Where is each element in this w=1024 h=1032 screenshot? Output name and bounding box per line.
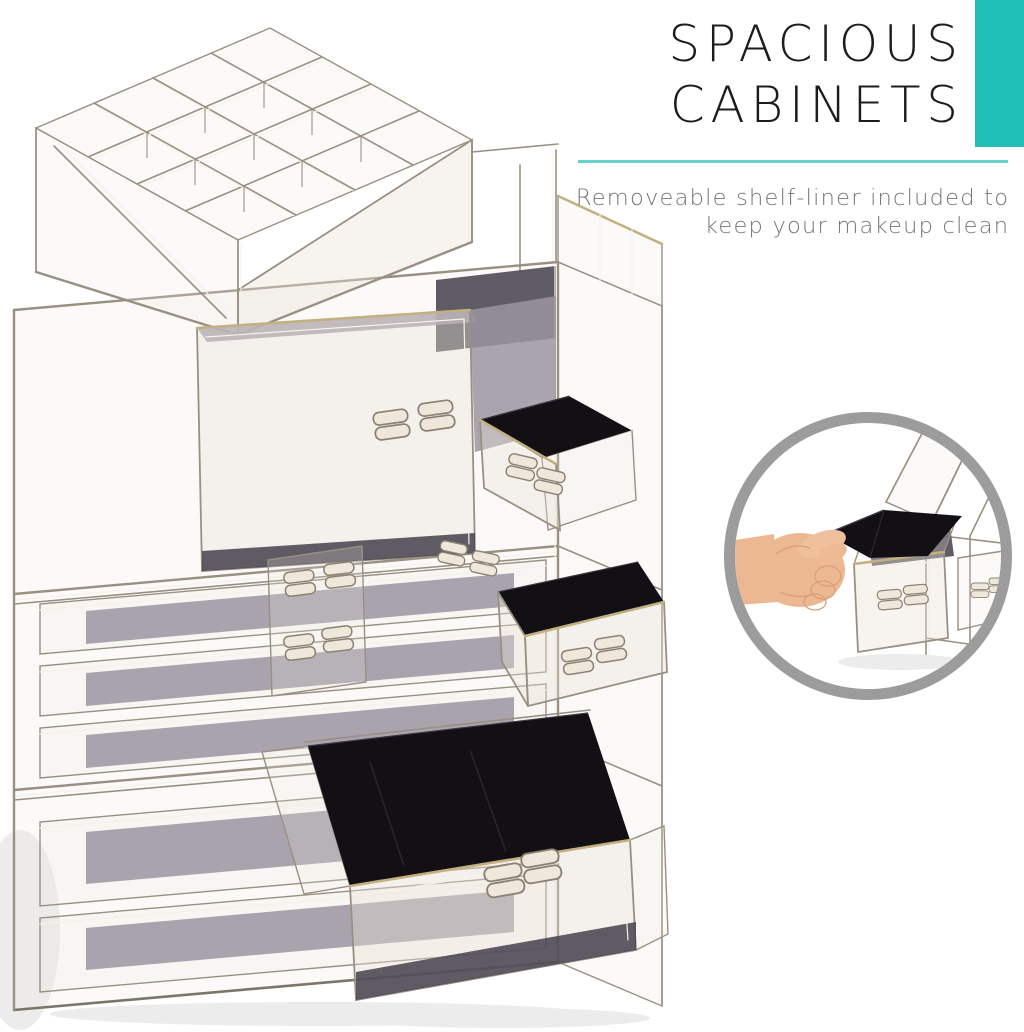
subtitle: Removeable shelf-liner included to keep … [576,184,1008,240]
inset-illustration [718,406,1018,706]
title-line-1: SPACIOUS [668,14,963,75]
divider-line [578,160,1008,163]
title-line-2: CABINETS [668,75,963,136]
page-title: SPACIOUS CABINETS [668,14,958,136]
subtitle-line-2: keep your makeup clean [576,212,1009,240]
headline-block: SPACIOUS CABINETS Removeable shelf-liner… [0,0,1024,260]
accent-bar [975,0,1024,147]
shelf-liner-demo-inset [718,406,1018,706]
drawer-front [197,310,475,571]
subtitle-line-1: Removeable shelf-liner included to [576,184,1009,212]
promo-image-canvas: SPACIOUS CABINETS Removeable shelf-liner… [0,0,1024,1032]
